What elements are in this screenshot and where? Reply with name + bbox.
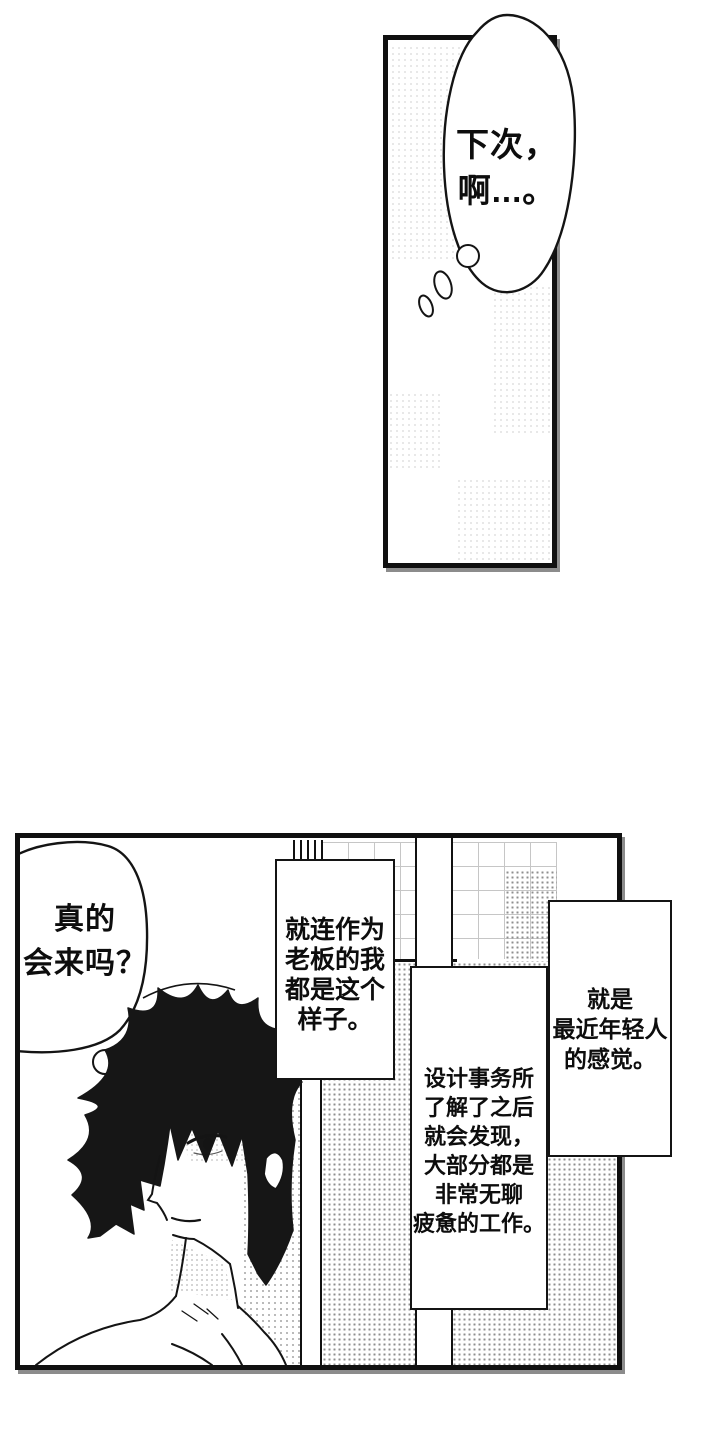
caption-box-a: 就连作为 老板的我 都是这个 样子。 [275, 859, 395, 1080]
caption-box-b: 设计事务所 了解了之后 就会发现， 大部分都是 非常无聊 疲惫的工作。 [410, 966, 548, 1310]
screentone-patch [388, 392, 444, 470]
thought-trail-oval [416, 294, 435, 319]
panel-bottom: 真的 会来吗？ 就连作为 老板的我 都是这个 样子。 设计事务所 了解了之后 就… [15, 833, 622, 1370]
caption-text-b: 设计事务所 了解了之后 就会发现， 大部分都是 非常无聊 疲惫的工作。 [413, 968, 545, 1238]
caption-text-a: 就连作为 老板的我 都是这个 样子。 [285, 905, 385, 1035]
thought-text-top: 下次， 啊...。 [438, 122, 576, 214]
screentone-patch [456, 478, 550, 560]
thought-trail-oval [431, 269, 455, 301]
caption-text-c: 就是 最近年轻人 的感觉。 [553, 984, 668, 1074]
character-body [136, 1296, 290, 1365]
character-eye [203, 1138, 213, 1150]
caption-box-c: 就是 最近年轻人 的感觉。 [548, 900, 672, 1157]
thought-text-bottom: 真的 会来吗？ [22, 898, 148, 986]
manga-page: { "page": { "background": "#ffffff", "in… [0, 0, 720, 1440]
